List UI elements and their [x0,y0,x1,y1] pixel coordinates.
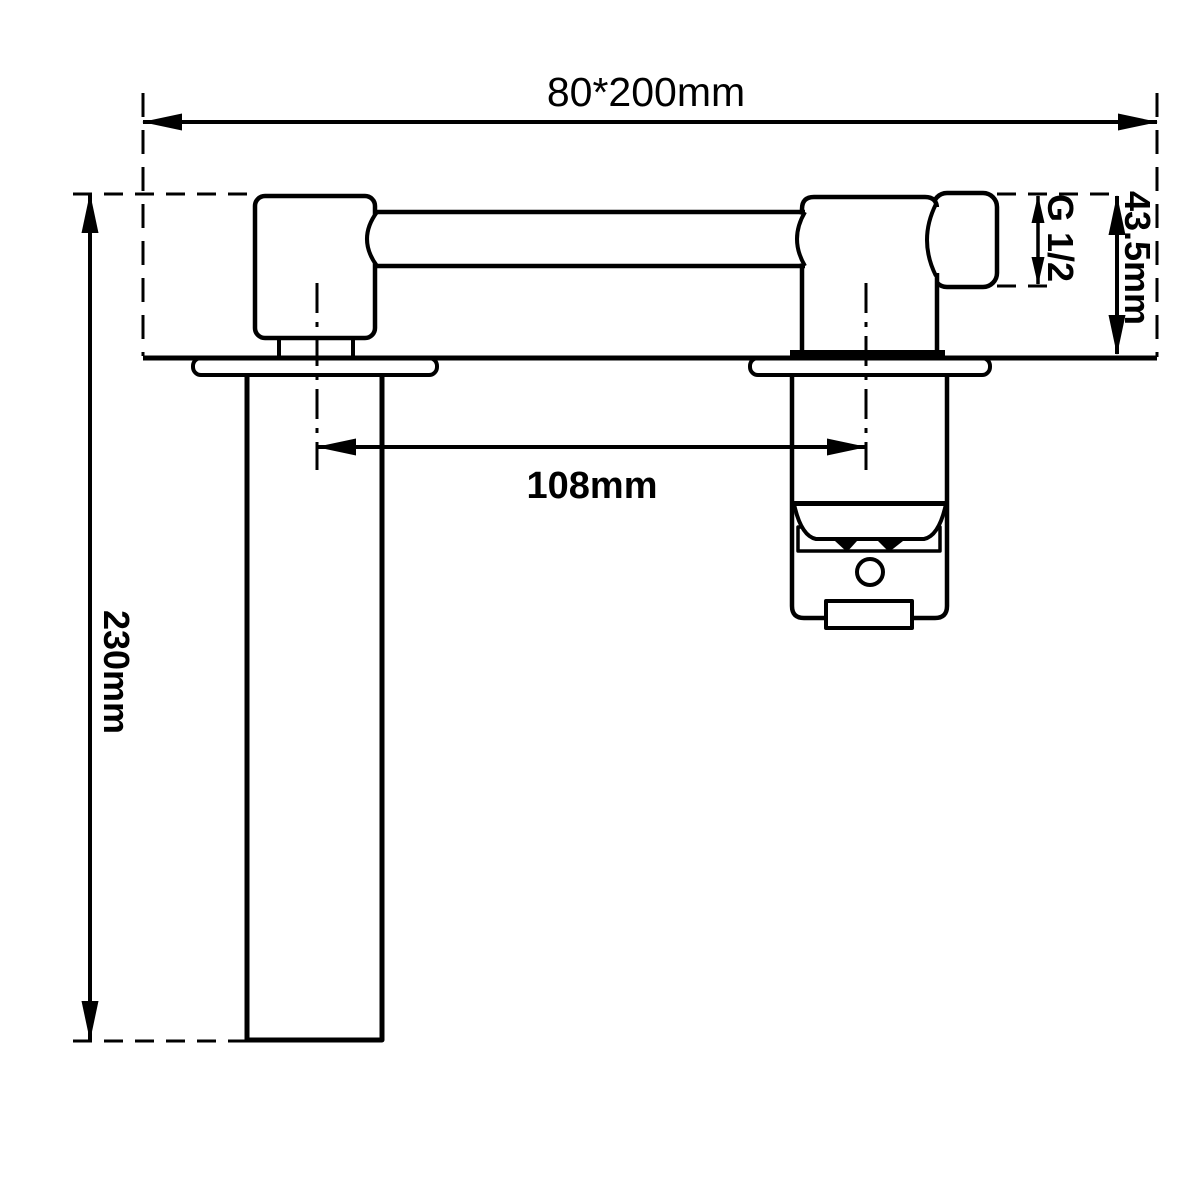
spout-pipe-fill [370,215,810,264]
dim-body-height-label: 43.5mm [1117,191,1158,325]
dim-inlet-pipe-length: 230mm [73,194,255,1041]
dim-thread-size: G 1/2 [997,194,1120,286]
valve-block [802,197,937,354]
dim-body-height: 43.5mm [1117,191,1158,354]
dim-thread-size-label: G 1/2 [1040,194,1081,282]
dim-center-distance-label: 108mm [527,465,658,507]
escutcheon-plate-right [750,358,990,375]
valve-bowl [794,504,946,539]
valve-bottom-tab [826,601,912,628]
dim-overall-size-label: 80*200mm [547,69,745,115]
escutcheon-plate-left [193,358,437,375]
faucet-technical-drawing: 80*200mm 230mm 108mm G 1/2 43.5mm [0,0,1200,1200]
drawing-canvas: 80*200mm 230mm 108mm G 1/2 43.5mm [0,0,1200,1200]
dim-center-distance: 108mm [317,283,866,507]
cap-joint-fill [920,207,946,273]
dim-pipe-length-label: 230mm [96,610,137,734]
valve-screw-hole [857,559,883,585]
inlet-pipe [247,375,382,1040]
spout-block [255,196,375,338]
faucet-body [143,193,1157,1040]
